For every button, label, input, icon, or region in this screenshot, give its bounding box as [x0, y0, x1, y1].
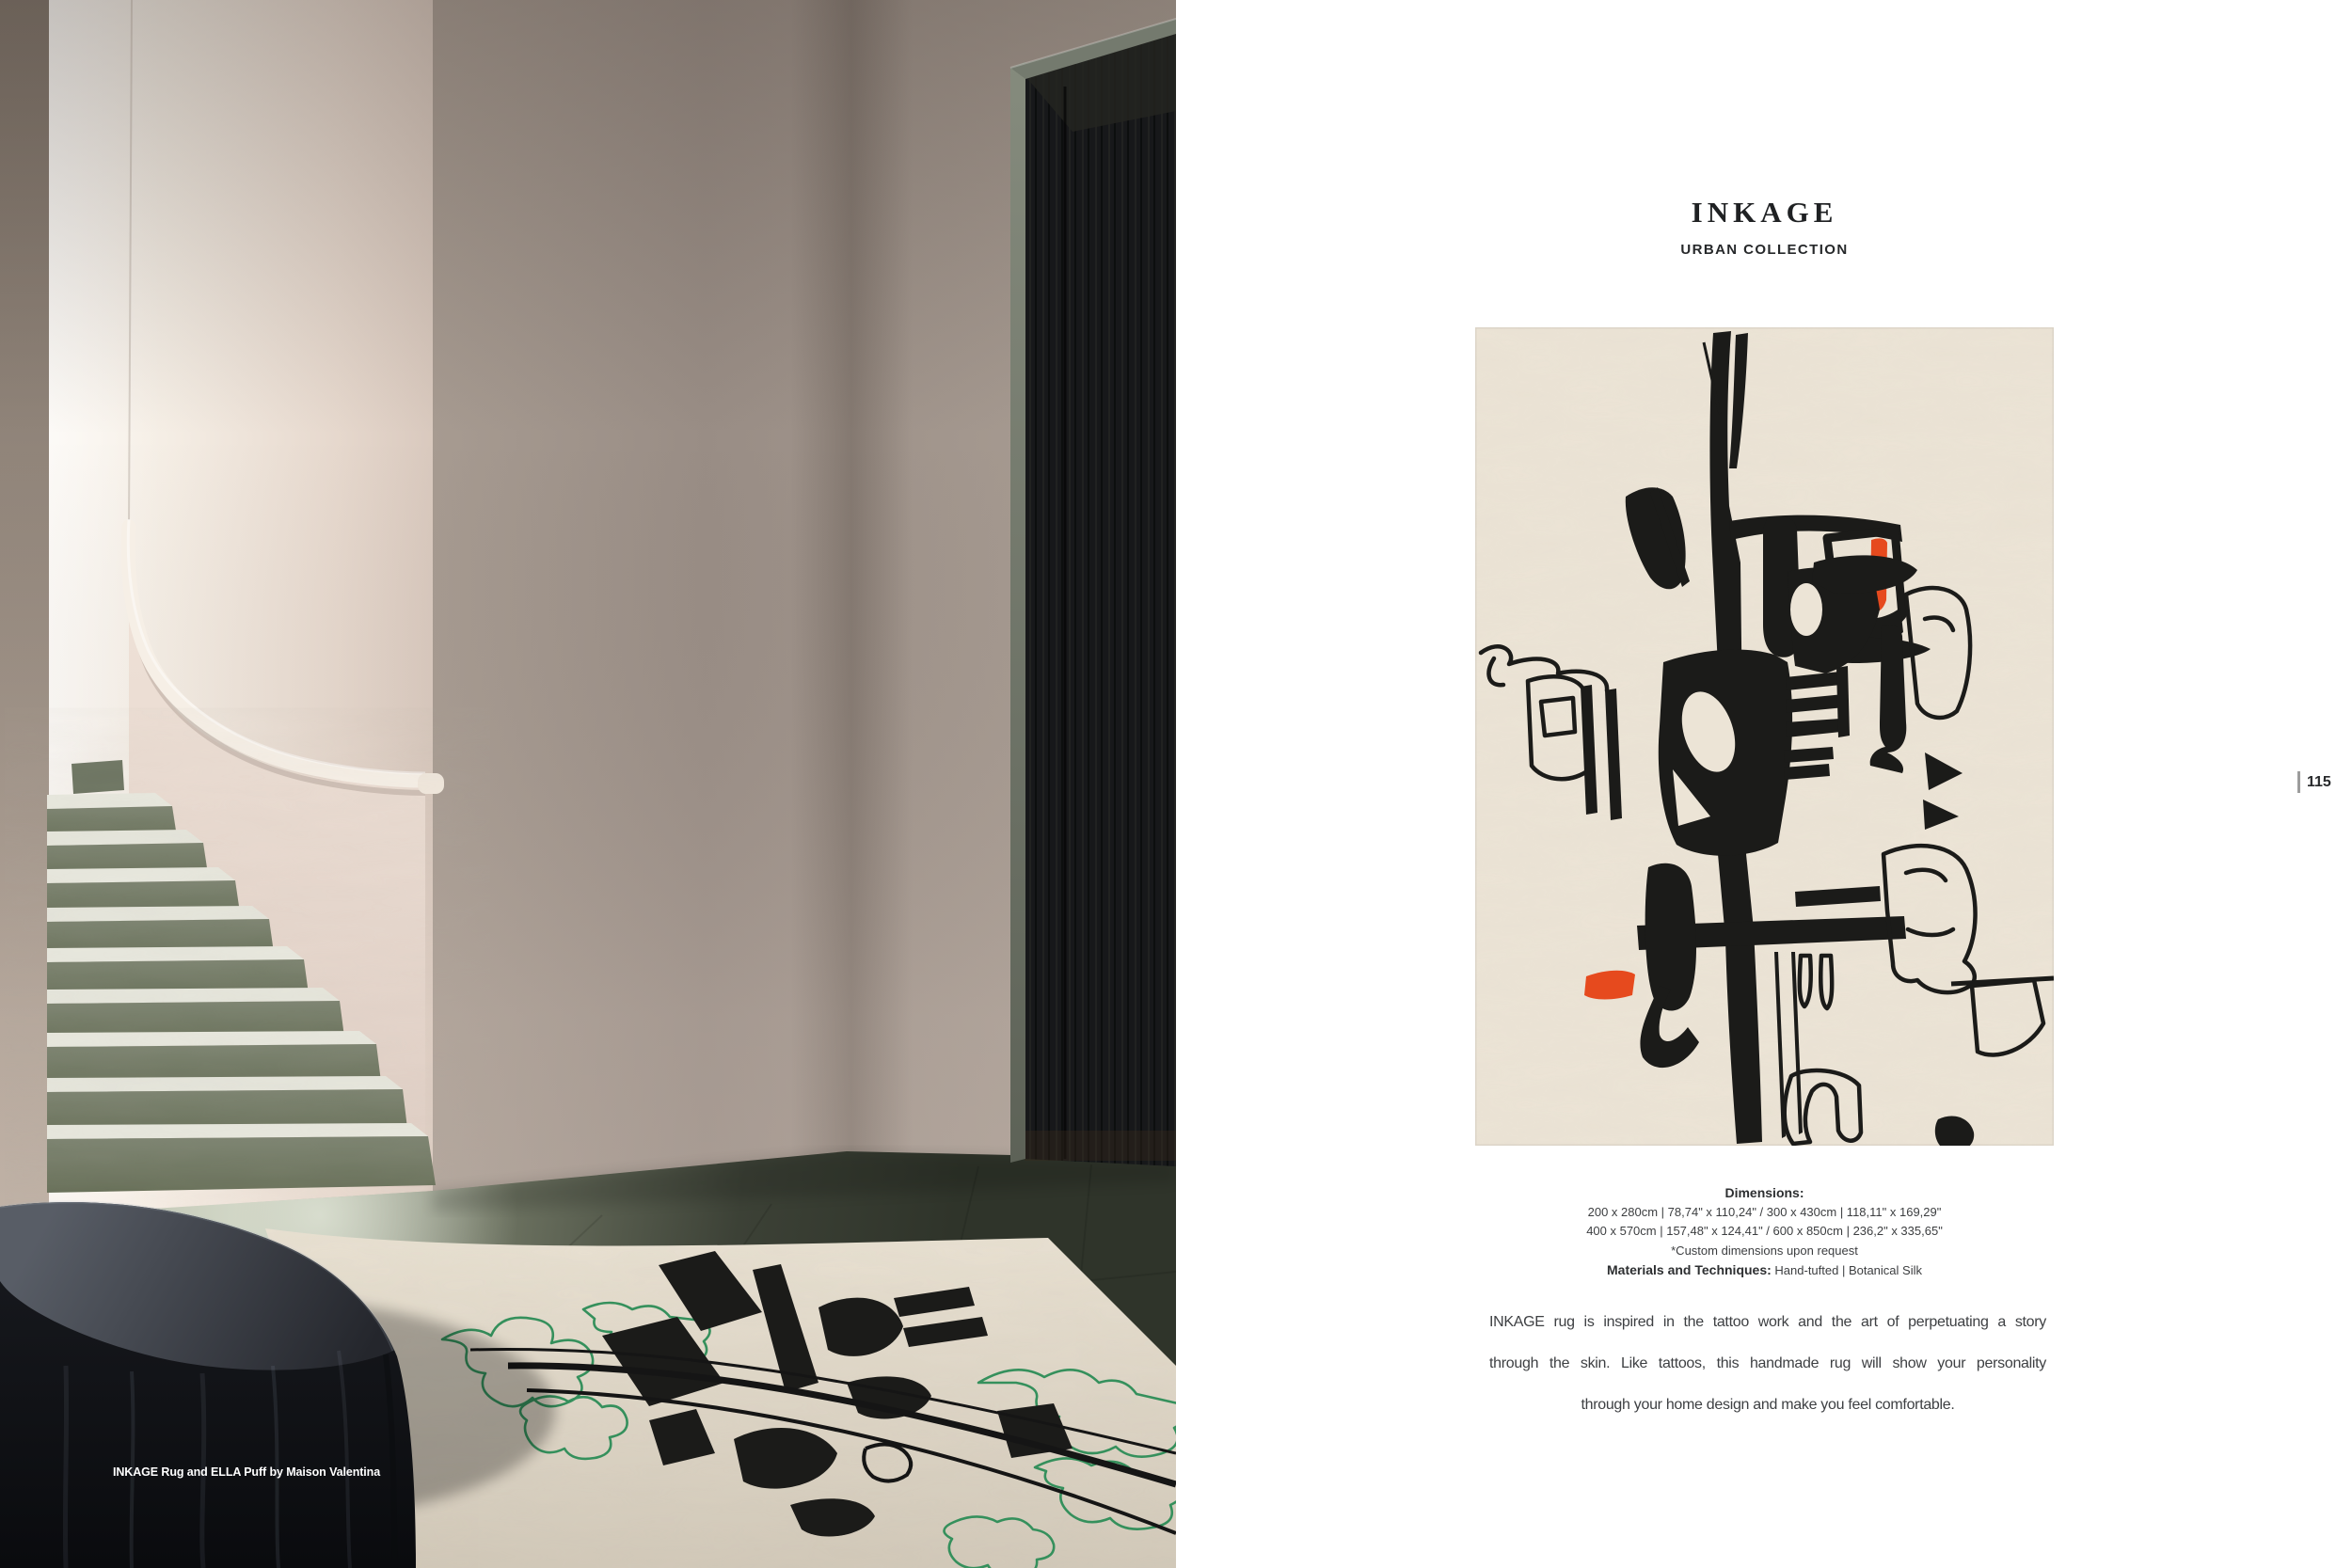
catalog-spread: INKAGE Rug and ELLA Puff by Maison Valen…	[0, 0, 2352, 1568]
dimensions-label: Dimensions:	[1381, 1183, 2148, 1203]
collection-subtitle: URBAN COLLECTION	[1475, 242, 2054, 258]
staircase	[45, 752, 450, 1199]
page-number-value: 115	[2307, 774, 2331, 791]
custom-dimensions-note: *Custom dimensions upon request	[1381, 1242, 2148, 1261]
page-title: INKAGE	[1475, 196, 2054, 230]
interior-photo-art	[0, 0, 1176, 1568]
description-line-1: INKAGE rug is inspired in the tattoo wor…	[1489, 1302, 2046, 1343]
product-description: INKAGE rug is inspired in the tattoo wor…	[1489, 1302, 2046, 1426]
rug-artwork	[1475, 327, 2054, 1146]
dimensions-line-2: 400 x 570cm | 157,48" x 124,41" / 600 x …	[1381, 1222, 2148, 1242]
page-number-divider	[2297, 771, 2300, 793]
page-number: 115	[2297, 771, 2331, 793]
materials-line: Materials and Techniques: Hand-tufted | …	[1381, 1260, 2148, 1281]
dimensions-block: Dimensions: 200 x 280cm | 78,74" x 110,2…	[1381, 1183, 2148, 1281]
description-line-3: through your home design and make you fe…	[1489, 1385, 2046, 1426]
door-frame-jamb	[1010, 62, 1025, 1163]
description-line-2: through the skin. Like tattoos, this han…	[1489, 1343, 2046, 1385]
dimensions-line-1: 200 x 280cm | 78,74" x 110,24" / 300 x 4…	[1381, 1203, 2148, 1223]
materials-label: Materials and Techniques:	[1607, 1262, 1772, 1277]
doorway	[1010, 19, 1176, 1166]
orange-accent-left	[1584, 971, 1635, 1000]
rug-product-image	[1475, 327, 2054, 1146]
interior-photo: INKAGE Rug and ELLA Puff by Maison Valen…	[0, 0, 1176, 1568]
materials-value: Hand-tufted | Botanical Silk	[1774, 1263, 1922, 1277]
photo-caption: INKAGE Rug and ELLA Puff by Maison Valen…	[113, 1465, 380, 1479]
